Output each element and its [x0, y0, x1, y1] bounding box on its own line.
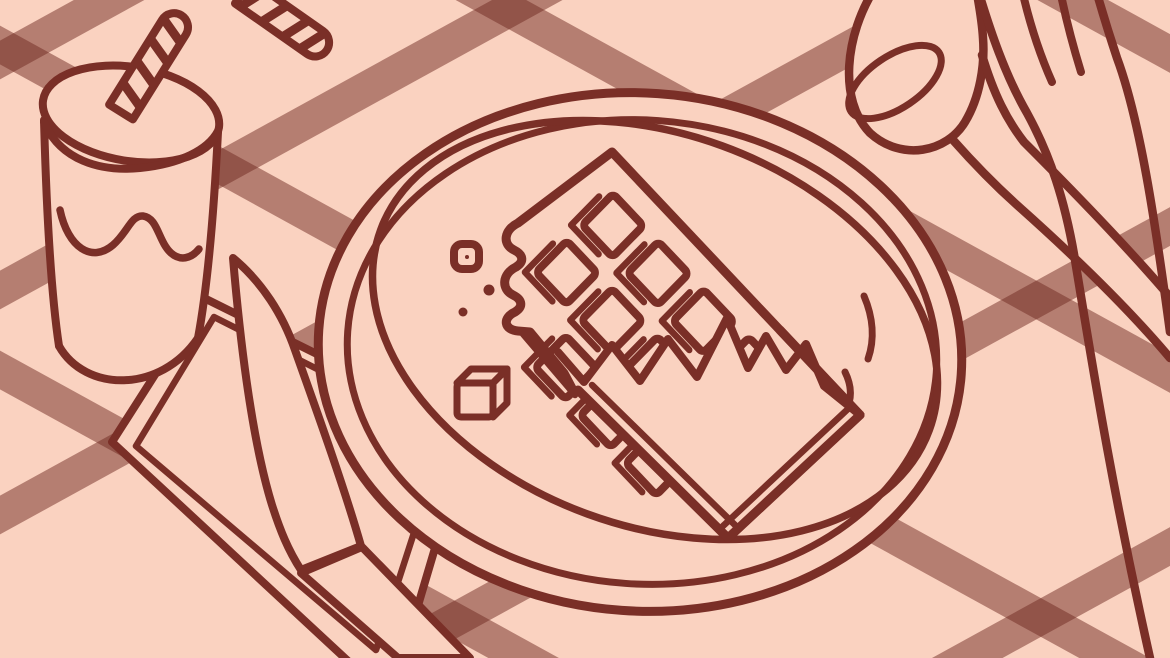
picnic-illustration — [0, 0, 1170, 658]
illustration-canvas — [0, 0, 1170, 658]
crumb-dot — [484, 285, 495, 296]
crumb-dot — [459, 308, 468, 317]
chocolate-chunk-cube — [457, 369, 507, 417]
crumb-ring-hole — [465, 255, 469, 259]
